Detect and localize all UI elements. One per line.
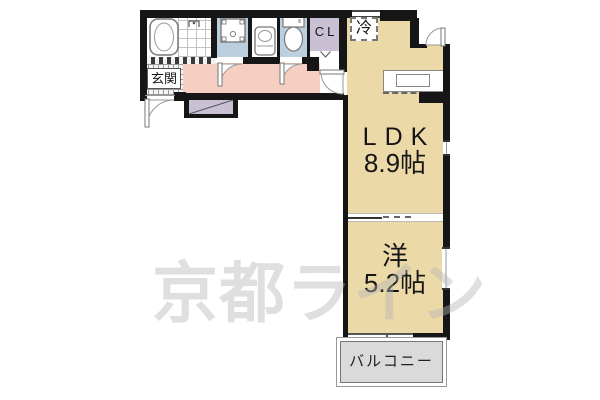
folding-door-icon (320, 51, 331, 58)
western-size-label: 5.2帖 (347, 270, 443, 297)
ldk-name-text: LDK (363, 124, 436, 150)
sliding-door-panel (348, 217, 382, 219)
floor-plan: CL 玄関 冷 (0, 0, 600, 400)
entrance-threshold (145, 95, 175, 96)
wall-left (140, 10, 147, 100)
ldk-name-label: LDK (347, 124, 443, 150)
ldk-top-door-swing (426, 28, 446, 48)
sliding-door-track (383, 216, 411, 218)
refrigerator-label: 冷 (356, 21, 372, 38)
ldk-size-label: 8.9帖 (347, 150, 443, 177)
wall-kitchen-pillar (419, 92, 445, 103)
wall-washbasin-toilet (277, 12, 280, 58)
ldk-right-window (443, 140, 450, 156)
wall-closet-right (339, 12, 347, 72)
washroom-door-swing (218, 63, 243, 88)
wall-washroom-washbasin (248, 12, 252, 58)
western-name-text: 洋 (382, 243, 408, 270)
wall-right-lower (443, 290, 450, 336)
closet-label: CL (315, 25, 338, 39)
refrigerator-space: 冷 (350, 17, 378, 41)
wall-hall-upper-chunk (307, 57, 319, 71)
entrance-step (143, 57, 215, 64)
washbasin-vanity (254, 26, 276, 56)
wall-top-left (140, 10, 352, 18)
ldk-size-text: 8.9帖 (364, 150, 426, 177)
balcony-label: バルコニー (349, 354, 434, 370)
kitchen-sink (396, 74, 430, 87)
entrance-door-swing (145, 99, 175, 129)
balcony: バルコニー (340, 341, 443, 383)
wall-hall-upper-1 (243, 57, 280, 64)
ldk-door-swing (320, 70, 344, 96)
western-right-window (442, 247, 450, 290)
wall-toilet-closet (307, 12, 310, 58)
entrance-storage-diagonal (189, 100, 233, 114)
shower-faucet-icon (188, 19, 200, 28)
western-name-label: 洋 (347, 243, 443, 270)
washing-machine-pan (220, 18, 246, 43)
toilet-door-swing (280, 63, 303, 86)
entrance-label: 玄関 (151, 72, 177, 86)
western-size-text: 5.2帖 (364, 270, 426, 297)
wall-right-middle (443, 156, 450, 247)
wall-bath-washroom (211, 12, 217, 58)
toilet (282, 16, 305, 54)
entrance-label-box: 玄関 (147, 68, 181, 89)
bathtub (149, 18, 179, 56)
